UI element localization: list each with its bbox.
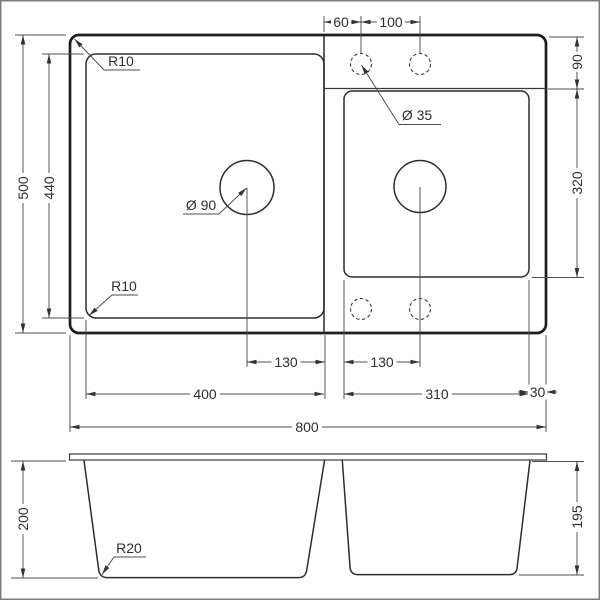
label-dia-35: Ø 35	[402, 107, 433, 123]
dim-right-bowl-width: 310	[344, 280, 529, 402]
label-r10-top: R10	[108, 53, 134, 69]
dim-label-440: 440	[41, 176, 57, 200]
dim-deck-depth: 90	[548, 37, 585, 89]
label-r20: R20	[116, 540, 142, 556]
leader-outer-radius: R10	[75, 39, 141, 70]
leader-tap-hole-diameter: Ø 35	[362, 65, 442, 125]
dim-right-drain-offset: 130	[344, 280, 420, 399]
dim-right-bowl-height: 195	[519, 462, 585, 576]
dim-label-200: 200	[15, 507, 31, 531]
dim-label-195: 195	[569, 505, 585, 529]
right-bowl-outline	[344, 91, 529, 277]
dim-label-800: 800	[295, 419, 319, 435]
plan-view	[70, 35, 546, 367]
label-r10-bottom: R10	[111, 278, 137, 294]
dim-right-margin: 30	[518, 335, 557, 432]
dim-inner-depth: 440	[41, 54, 84, 318]
dim-label-90: 90	[569, 54, 585, 70]
dim-label-100: 100	[379, 14, 403, 30]
tap-hole-top-left	[351, 54, 372, 75]
dim-overall-width: 800	[70, 335, 546, 435]
leader-bottom-radius: R20	[102, 540, 146, 575]
technical-drawing-canvas: 500 440 60 100 90	[0, 0, 600, 600]
tap-hole-bottom-left	[351, 299, 372, 320]
dim-tap-spacing: 100	[361, 14, 420, 30]
dim-label-500: 500	[15, 176, 31, 200]
dim-left-drain-offset: 130	[247, 335, 325, 399]
leader-drain-diameter: Ø 90	[183, 188, 247, 214]
sink-drawing-svg: 500 440 60 100 90	[0, 0, 600, 600]
side-view	[70, 454, 547, 578]
dim-tap-offset: 60	[324, 14, 420, 53]
dim-label-310: 310	[425, 386, 449, 402]
dim-right-bowl-depth: 320	[532, 89, 585, 278]
leader-inner-radius: R10	[89, 278, 138, 316]
side-view-left-bowl-profile	[84, 461, 325, 578]
label-dia-90: Ø 90	[186, 197, 217, 213]
dim-label-400: 400	[193, 386, 217, 402]
side-view-rim	[70, 454, 547, 460]
dim-label-30: 30	[530, 384, 546, 400]
dim-label-130-left: 130	[274, 354, 298, 370]
dim-label-130-right: 130	[370, 354, 394, 370]
tap-hole-top-right	[410, 54, 431, 75]
dim-label-320: 320	[569, 171, 585, 195]
dim-label-60: 60	[333, 14, 349, 30]
dim-left-bowl-height: 200	[11, 461, 98, 578]
side-view-right-bowl-profile	[342, 461, 530, 575]
sink-outer-outline	[70, 35, 546, 333]
